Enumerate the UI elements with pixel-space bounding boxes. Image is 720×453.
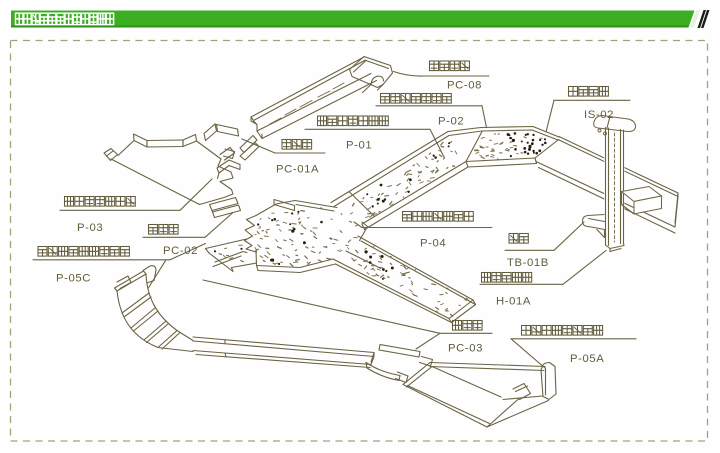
svg-text:IS-02: IS-02 bbox=[584, 109, 614, 121]
svg-text:P-05A: P-05A bbox=[570, 353, 604, 365]
svg-text:P-03: P-03 bbox=[77, 222, 103, 234]
svg-text:PC-01A: PC-01A bbox=[276, 164, 319, 176]
svg-text:PC-08: PC-08 bbox=[447, 80, 482, 92]
svg-text:P-05C: P-05C bbox=[56, 273, 91, 285]
svg-text:P-04: P-04 bbox=[420, 238, 446, 250]
svg-text:PC-03: PC-03 bbox=[448, 343, 483, 355]
svg-text:TB-01B: TB-01B bbox=[507, 257, 549, 269]
svg-text:P-02: P-02 bbox=[438, 116, 464, 128]
svg-text:H-01A: H-01A bbox=[496, 296, 531, 308]
svg-text:P-01: P-01 bbox=[346, 140, 372, 152]
